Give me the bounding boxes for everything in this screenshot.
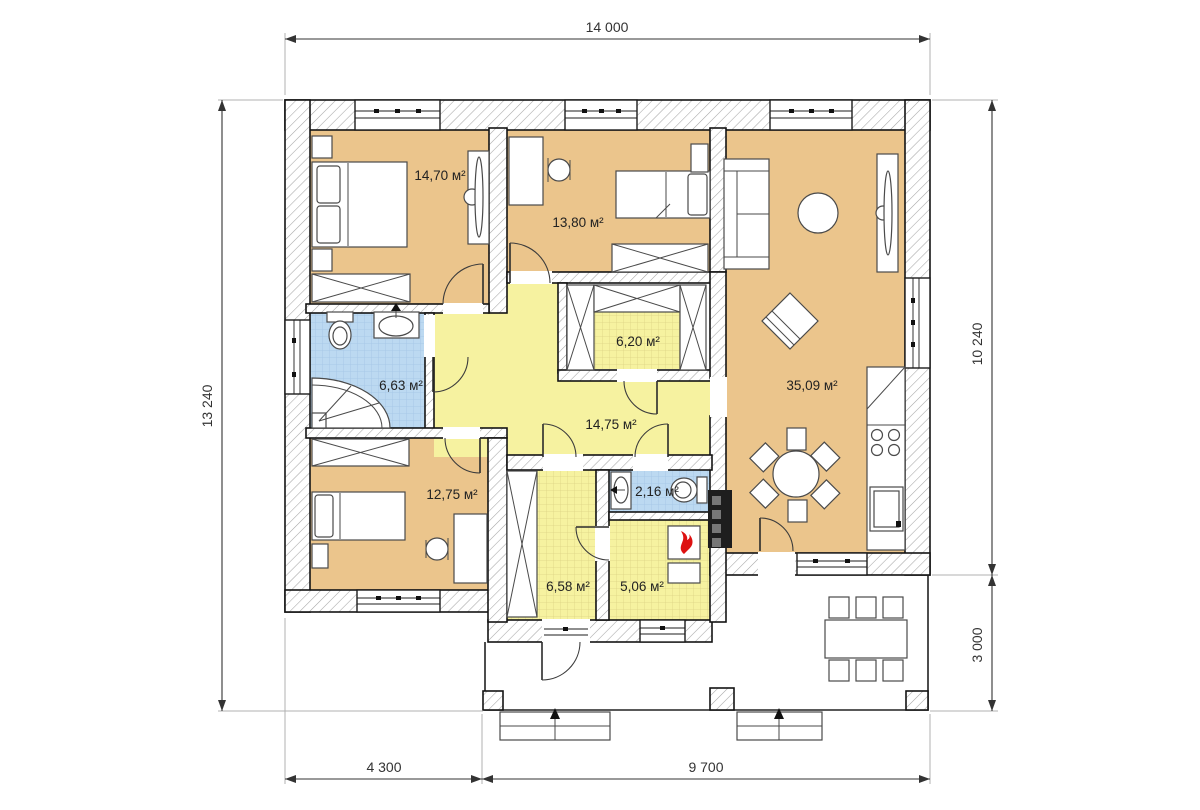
nightstand [312, 249, 332, 271]
opening-terrace-door [758, 552, 795, 576]
dim-right: 10 240 3 000 [969, 100, 996, 711]
chair [548, 158, 570, 182]
toilet [327, 312, 353, 349]
boiler-shelf [668, 563, 700, 583]
fridge [870, 487, 903, 531]
wall-living-left-mid [710, 272, 726, 378]
wall-wc-bottom [609, 512, 710, 520]
terrace-post [906, 691, 928, 710]
dresser-mirror [464, 151, 489, 244]
label-hallway: 14,75 м² [585, 417, 637, 432]
opening-hall-living [710, 377, 727, 417]
chair [426, 538, 448, 560]
window-bathroom-left [285, 320, 310, 394]
nightstand [312, 544, 328, 568]
sink [610, 472, 631, 509]
chimney [708, 490, 732, 548]
entry-wardrobe [507, 471, 537, 617]
label-boiler-room: 5,06 м² [620, 579, 664, 594]
window-living-right [905, 278, 930, 368]
dim-bottom-right-value: 9 700 [688, 759, 723, 775]
wall-bedroom1-right [489, 128, 507, 313]
steps-left [500, 708, 610, 740]
label-walk-in-closet: 6,20 м² [616, 334, 660, 349]
wardrobe [312, 439, 409, 466]
kitchen-counter [867, 367, 905, 550]
dim-left: 13 240 [199, 100, 226, 711]
wall-bedroom3-right [488, 438, 507, 622]
dim-right-lower-value: 3 000 [969, 627, 985, 662]
tv-stand [876, 154, 898, 272]
wall-hall-south [507, 455, 712, 470]
window-bedroom1-top [355, 100, 440, 130]
dim-left-value: 13 240 [199, 384, 215, 427]
label-living-kitchen: 35,09 м² [786, 378, 838, 393]
single-bed [616, 171, 710, 218]
wardrobe [312, 274, 410, 302]
door-entrance [542, 642, 580, 680]
single-bed [312, 492, 405, 540]
floor-plan-drawing: 14,70 м² 13,80 м² 35,09 м² 6,20 м² 6,63 … [0, 0, 1200, 810]
floor-plan-canvas: 14,70 м² 13,80 м² 35,09 м² 6,20 м² 6,63 … [0, 0, 1200, 810]
steps-right [737, 708, 822, 740]
terrace-post [710, 688, 734, 710]
window-living-top [770, 100, 852, 130]
boiler-equipment [668, 526, 700, 583]
desk [509, 137, 543, 205]
window-boiler-bottom [640, 620, 685, 642]
dim-top: 14 000 [285, 19, 930, 43]
label-wc: 2,16 м² [635, 484, 679, 499]
coffee-table [798, 193, 838, 233]
desk [454, 514, 487, 583]
label-entry-hall: 6,58 м² [546, 579, 590, 594]
room-hallway-b [507, 283, 558, 457]
dim-right-upper-value: 10 240 [969, 322, 985, 365]
label-bedroom-top-middle: 13,80 м² [552, 215, 604, 230]
dim-bottom: 4 300 9 700 [285, 759, 930, 783]
shelf [691, 144, 708, 172]
label-bedroom-top-left: 14,70 м² [414, 168, 466, 183]
wardrobe [612, 244, 708, 272]
sofa [724, 159, 769, 269]
nightstand [312, 136, 332, 158]
label-bedroom-bottom-left: 12,75 м² [426, 487, 478, 502]
dim-top-value: 14 000 [586, 19, 629, 35]
dim-bottom-left-value: 4 300 [366, 759, 401, 775]
terrace-post [483, 691, 503, 710]
window-bedroom2-top [565, 100, 637, 130]
double-bed [312, 162, 407, 247]
terrace-dining-set [825, 597, 907, 681]
window-bedroom3-bottom [357, 590, 440, 612]
label-bathroom: 6,63 м² [379, 378, 423, 393]
window-living-bottom [797, 553, 867, 575]
wall-closet-left [558, 283, 567, 373]
